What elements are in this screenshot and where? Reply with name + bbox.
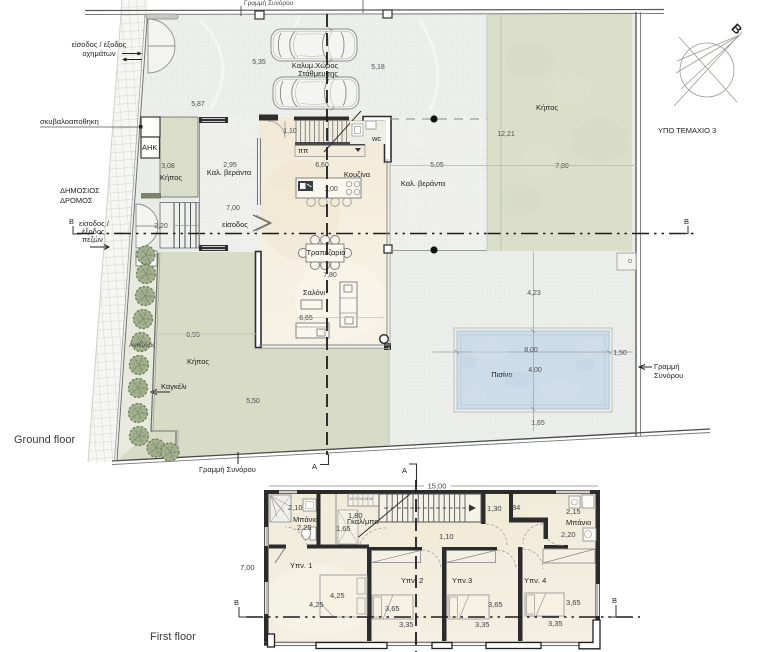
svg-text:6,55: 6,55 bbox=[186, 332, 200, 339]
svg-text:Κήπος: Κήπος bbox=[160, 173, 182, 182]
svg-text:σκυβαλοαποθηκη: σκυβαλοαποθηκη bbox=[40, 117, 99, 126]
svg-text:02 03 04 05 06: 02 03 04 05 06 bbox=[349, 497, 373, 501]
svg-text:Καλ. βεράντα: Καλ. βεράντα bbox=[401, 179, 446, 188]
svg-text:12,21: 12,21 bbox=[497, 131, 515, 138]
svg-text:3,35: 3,35 bbox=[399, 620, 414, 629]
svg-text:1,10: 1,10 bbox=[283, 128, 297, 135]
svg-text:3,35: 3,35 bbox=[475, 620, 490, 629]
svg-text:2,20: 2,20 bbox=[561, 530, 576, 539]
svg-text:Μπάνιο: Μπάνιο bbox=[566, 518, 591, 527]
svg-text:Σαλόνι: Σαλόνι bbox=[303, 288, 326, 297]
svg-text:15,00: 15,00 bbox=[428, 482, 447, 491]
svg-text:7,80: 7,80 bbox=[323, 272, 337, 279]
svg-text:6,65: 6,65 bbox=[299, 315, 313, 322]
svg-text:4,25: 4,25 bbox=[309, 600, 324, 609]
svg-text:5,35: 5,35 bbox=[252, 59, 266, 66]
svg-text:Υπν. 4: Υπν. 4 bbox=[524, 576, 546, 585]
svg-text:7,00: 7,00 bbox=[240, 563, 255, 572]
svg-text:1,50: 1,50 bbox=[613, 350, 627, 357]
svg-text:4,23: 4,23 bbox=[527, 290, 541, 297]
svg-text:Κήπος: Κήπος bbox=[187, 357, 209, 366]
svg-text:ΥΠΟ ΤΕΜΑΧΙΟ 3: ΥΠΟ ΤΕΜΑΧΙΟ 3 bbox=[658, 126, 716, 135]
svg-text:Β: Β bbox=[69, 217, 74, 226]
svg-text:4,00: 4,00 bbox=[528, 367, 542, 374]
svg-text:Γραμμή: Γραμμή bbox=[654, 362, 680, 371]
svg-text:πεζών: πεζών bbox=[82, 235, 103, 244]
svg-text:Συνόρου: Συνόρου bbox=[654, 371, 683, 380]
svg-text:84: 84 bbox=[512, 503, 520, 512]
svg-text:5,18: 5,18 bbox=[371, 64, 385, 71]
svg-text:Κήπος: Κήπος bbox=[536, 103, 558, 112]
svg-text:4,25: 4,25 bbox=[330, 591, 345, 600]
svg-text:2,15: 2,15 bbox=[566, 507, 581, 516]
svg-text:A: A bbox=[402, 466, 407, 475]
svg-text:1,65: 1,65 bbox=[336, 524, 351, 533]
svg-text:3,65: 3,65 bbox=[488, 600, 503, 609]
svg-text:2,20: 2,20 bbox=[154, 223, 168, 230]
svg-text:First floor: First floor bbox=[150, 631, 196, 643]
svg-text:1,10: 1,10 bbox=[439, 532, 454, 541]
svg-text:είσοδος / έξοδος: είσοδος / έξοδος bbox=[72, 40, 127, 49]
svg-text:Υπν.3: Υπν.3 bbox=[452, 576, 472, 585]
svg-text:ΔΗΜΟΣΙΟΣ: ΔΗΜΟΣΙΟΣ bbox=[60, 186, 100, 195]
svg-text:5,87: 5,87 bbox=[191, 101, 205, 108]
svg-text:1,65: 1,65 bbox=[531, 420, 545, 427]
svg-text:2,10: 2,10 bbox=[288, 503, 303, 512]
svg-text:είσοδος: είσοδος bbox=[222, 220, 248, 229]
svg-text:3,08: 3,08 bbox=[161, 163, 175, 170]
svg-text:Ground floor: Ground floor bbox=[14, 434, 75, 446]
svg-text:B: B bbox=[612, 596, 617, 605]
svg-text:Καγκέλι: Καγκέλι bbox=[161, 382, 187, 391]
svg-text:οχημάτων: οχημάτων bbox=[82, 49, 115, 58]
svg-text:Ανθώνας: Ανθώνας bbox=[129, 341, 155, 349]
svg-text:3,65: 3,65 bbox=[385, 604, 400, 613]
svg-text:1,30: 1,30 bbox=[487, 504, 502, 513]
svg-text:Στάθμευσης: Στάθμευσης bbox=[298, 69, 338, 78]
svg-text:Γραμμή Συνόρου: Γραμμή Συνόρου bbox=[199, 465, 256, 474]
svg-text:5,50: 5,50 bbox=[246, 398, 260, 405]
svg-text:wc: wc bbox=[371, 134, 381, 143]
svg-text:ππ: ππ bbox=[298, 146, 308, 155]
svg-text:Υπν. 1: Υπν. 1 bbox=[290, 561, 312, 570]
svg-text:Γκαλ/μπα: Γκαλ/μπα bbox=[347, 517, 379, 526]
svg-text:A: A bbox=[312, 462, 317, 471]
svg-text:Υπν. 2: Υπν. 2 bbox=[401, 576, 423, 585]
svg-text:2,25: 2,25 bbox=[297, 523, 312, 532]
svg-text:ΔΡΟΜΟΣ: ΔΡΟΜΟΣ bbox=[60, 196, 93, 205]
svg-text:B: B bbox=[684, 217, 689, 226]
svg-text:7,00: 7,00 bbox=[226, 205, 240, 212]
svg-text:3,35: 3,35 bbox=[548, 619, 563, 628]
svg-text:ΑΗΚ: ΑΗΚ bbox=[142, 143, 157, 152]
svg-text:8,00: 8,00 bbox=[524, 347, 538, 354]
svg-text:7,80: 7,80 bbox=[555, 163, 569, 170]
svg-text:3,65: 3,65 bbox=[566, 598, 581, 607]
svg-text:B: B bbox=[234, 598, 239, 607]
svg-text:Γραμμή Συνόρου: Γραμμή Συνόρου bbox=[244, 0, 294, 7]
svg-text:Καλ. βεράντα: Καλ. βεράντα bbox=[207, 168, 252, 177]
